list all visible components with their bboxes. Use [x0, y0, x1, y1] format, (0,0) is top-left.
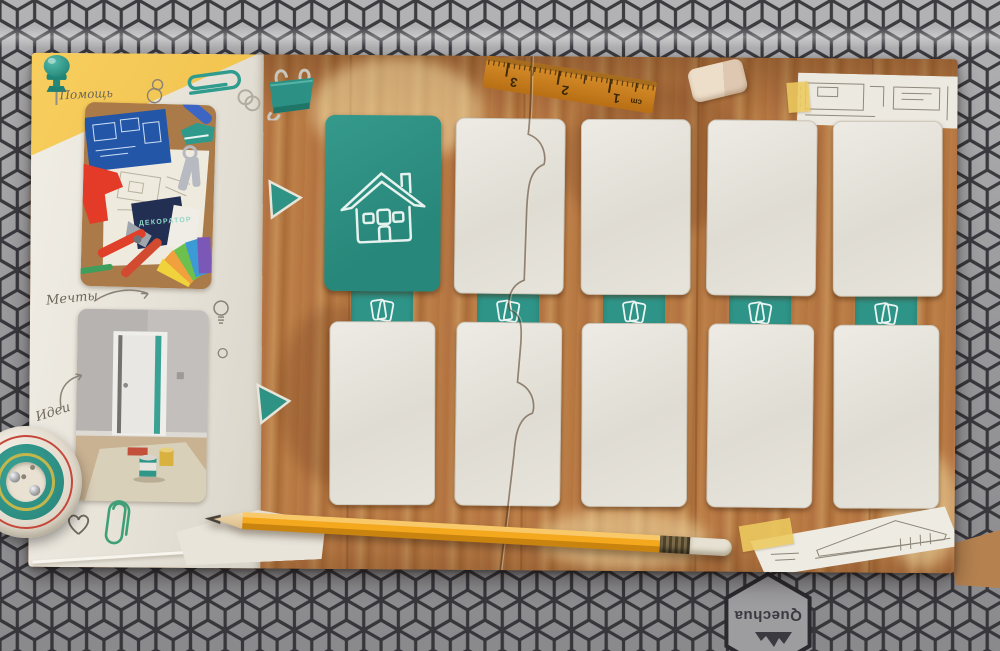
play-triangle-icon: [255, 380, 293, 425]
lightbulb-icon: [210, 298, 234, 330]
card-slot: [454, 117, 566, 294]
label-dreams: Мечты: [45, 289, 98, 309]
play-triangle-icon: [268, 178, 304, 220]
blueprint: [84, 109, 172, 172]
house-start-card: [324, 115, 441, 292]
card-slot: [329, 321, 435, 505]
pencil-eraser: [689, 537, 732, 556]
card-slot: [706, 119, 818, 296]
binder-clip-icon: [263, 60, 319, 120]
card-slot: [833, 121, 943, 297]
wall-socket: [177, 372, 184, 379]
door: [112, 331, 168, 436]
pencil-ferrule: [659, 535, 690, 554]
wire-clip-icon: [235, 84, 263, 116]
fabric-fold-highlight: [0, 26, 1000, 48]
house-icon: [333, 153, 433, 253]
ruler-unit: cm: [630, 96, 643, 107]
green-paperclip-icon: [99, 492, 136, 555]
washi-tape: [786, 81, 810, 113]
card-slot: [454, 321, 562, 506]
pencil-wood-tip: [213, 511, 244, 530]
arrow-doodle: [55, 371, 87, 411]
photo-of-board-game: Quechua: [0, 0, 1000, 651]
circle-doodle: [216, 346, 230, 360]
photo-room: [75, 309, 209, 503]
arrow-doodle: [92, 285, 154, 305]
photo-tools: ДЕКОРАТОР: [80, 102, 216, 290]
card-slot: [706, 323, 814, 508]
card-slot: [833, 325, 939, 509]
label-help: Помощь: [59, 86, 113, 102]
card-slot: [581, 323, 688, 507]
card-slot: [581, 119, 691, 295]
bottle-doodle: [143, 76, 169, 106]
fabric-brand-text: Quechua: [734, 607, 802, 624]
game-board: Помощь: [28, 53, 958, 573]
